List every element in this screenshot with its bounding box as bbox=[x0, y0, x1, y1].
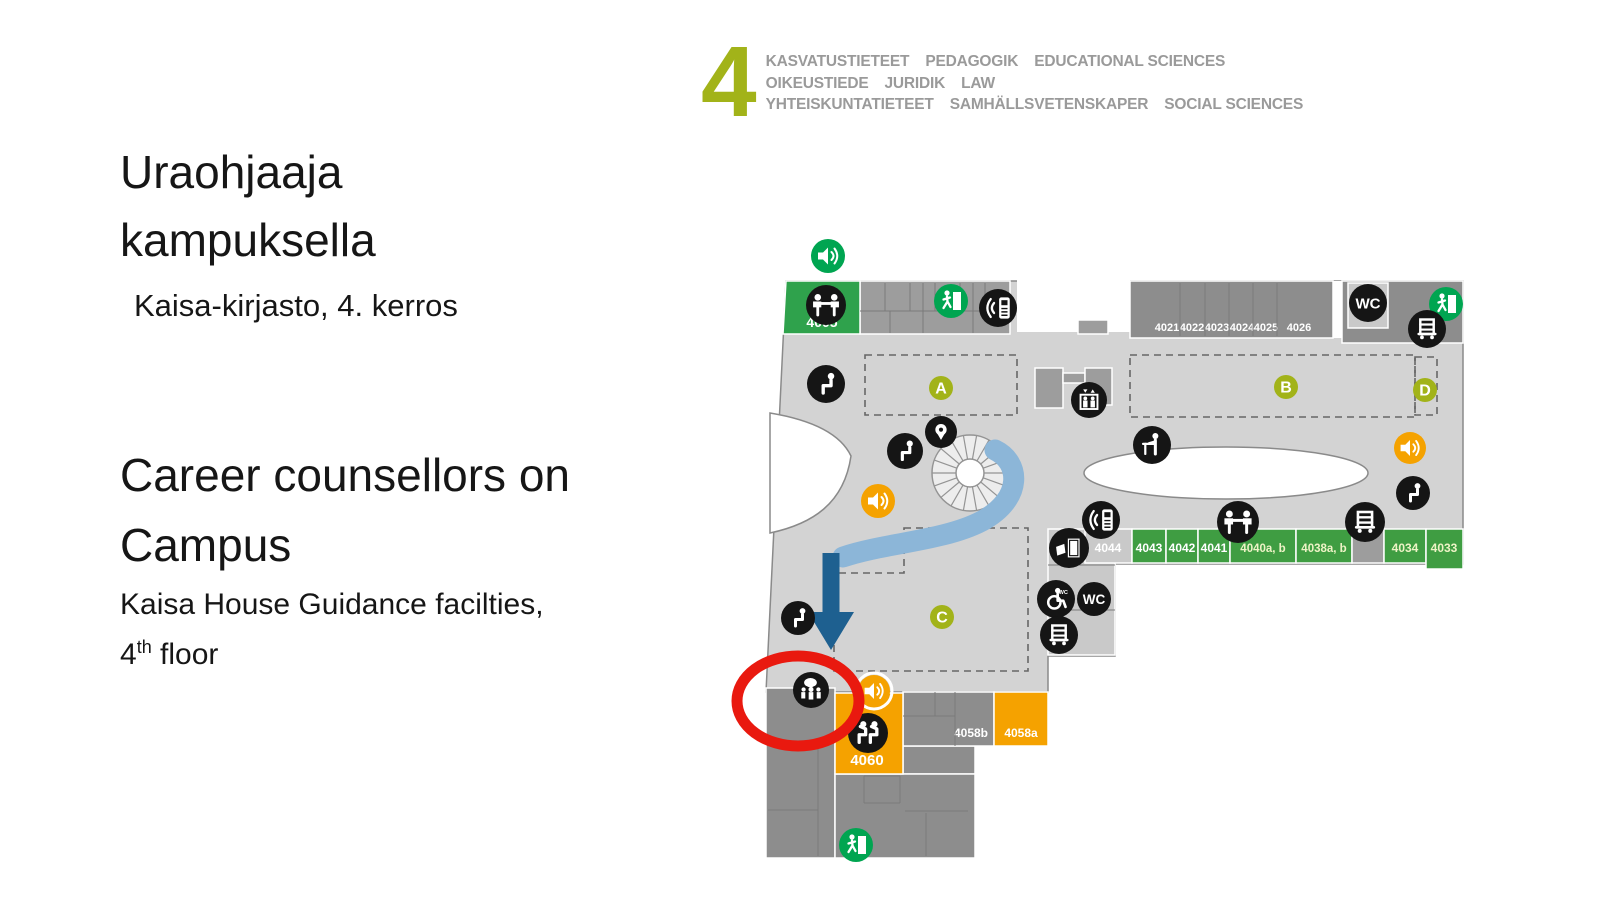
pin-icon bbox=[925, 416, 957, 448]
zone-label: C bbox=[936, 610, 948, 627]
room-label: 4026 bbox=[1287, 322, 1311, 334]
elevator-block-mid bbox=[1063, 373, 1085, 383]
speaker-icon bbox=[861, 484, 895, 518]
elevator-block-left bbox=[1035, 368, 1063, 408]
room-label: 4058a bbox=[1004, 726, 1038, 740]
top-notch-white bbox=[1017, 279, 1130, 332]
svg-text:WC: WC bbox=[1355, 295, 1380, 312]
room-label: 4023 bbox=[1205, 322, 1229, 334]
group-table-icon bbox=[1217, 501, 1259, 543]
svg-text:WC: WC bbox=[1059, 590, 1068, 596]
copier-icon bbox=[1049, 528, 1089, 568]
phone-icon bbox=[979, 289, 1017, 327]
room-label: 4043 bbox=[1136, 541, 1163, 555]
exit-icon bbox=[839, 828, 873, 862]
speaker-icon bbox=[811, 239, 845, 273]
room-label: 4041 bbox=[1201, 541, 1228, 555]
wc-icon: WC bbox=[1349, 284, 1387, 322]
room-label: 4024 bbox=[1230, 322, 1255, 334]
room-label: 4058b bbox=[954, 726, 988, 740]
counselling-icon bbox=[793, 672, 829, 708]
room-label: 4044 bbox=[1095, 541, 1122, 555]
zone-label: D bbox=[1419, 383, 1431, 400]
svg-text:WC: WC bbox=[1083, 592, 1106, 607]
floor-map-svg: 400540444043404240414040a, b4038a, b4034… bbox=[0, 0, 1600, 900]
room-label: 4033 bbox=[1431, 541, 1458, 555]
room-label: 4060 bbox=[850, 752, 883, 769]
group-table-icon bbox=[806, 285, 846, 325]
seated-icon bbox=[887, 433, 923, 469]
cart-icon bbox=[1040, 616, 1078, 654]
seated-icon bbox=[1396, 476, 1430, 510]
exit-icon bbox=[934, 284, 968, 318]
atrium-opening bbox=[1084, 447, 1368, 499]
room-label: 4025 bbox=[1254, 322, 1278, 334]
cart-icon bbox=[1345, 502, 1385, 542]
room-label: 4034 bbox=[1392, 541, 1419, 555]
slide: 4 KASVATUSTIETEETPEDAGOGIKEDUCATIONAL SC… bbox=[0, 0, 1600, 900]
room-label: 4021 bbox=[1155, 322, 1179, 334]
room-label: 4040a, b bbox=[1240, 543, 1285, 555]
seated-icon bbox=[781, 601, 815, 635]
elevator-icon bbox=[1071, 382, 1107, 418]
floor-map: 400540444043404240414040a, b4038a, b4034… bbox=[0, 0, 1600, 900]
top-gap-white bbox=[1333, 281, 1342, 338]
zone-label: A bbox=[935, 381, 947, 398]
lower-mid-block bbox=[903, 746, 975, 774]
zone-label: B bbox=[1280, 380, 1292, 397]
wheelchair-icon: WC bbox=[1037, 580, 1075, 618]
cart-icon bbox=[1408, 310, 1446, 348]
lower-left-block bbox=[766, 688, 835, 858]
room-label: 4038a, b bbox=[1301, 543, 1346, 555]
phone-icon bbox=[1082, 501, 1120, 539]
speaker-icon bbox=[1394, 432, 1426, 464]
wc-icon: WC bbox=[1077, 582, 1111, 616]
room-label: 4042 bbox=[1169, 541, 1196, 555]
standing-desk-icon bbox=[1133, 426, 1171, 464]
top-notch-step bbox=[1078, 320, 1108, 334]
room-label: 4022 bbox=[1180, 322, 1204, 334]
seated-icon bbox=[807, 365, 845, 403]
